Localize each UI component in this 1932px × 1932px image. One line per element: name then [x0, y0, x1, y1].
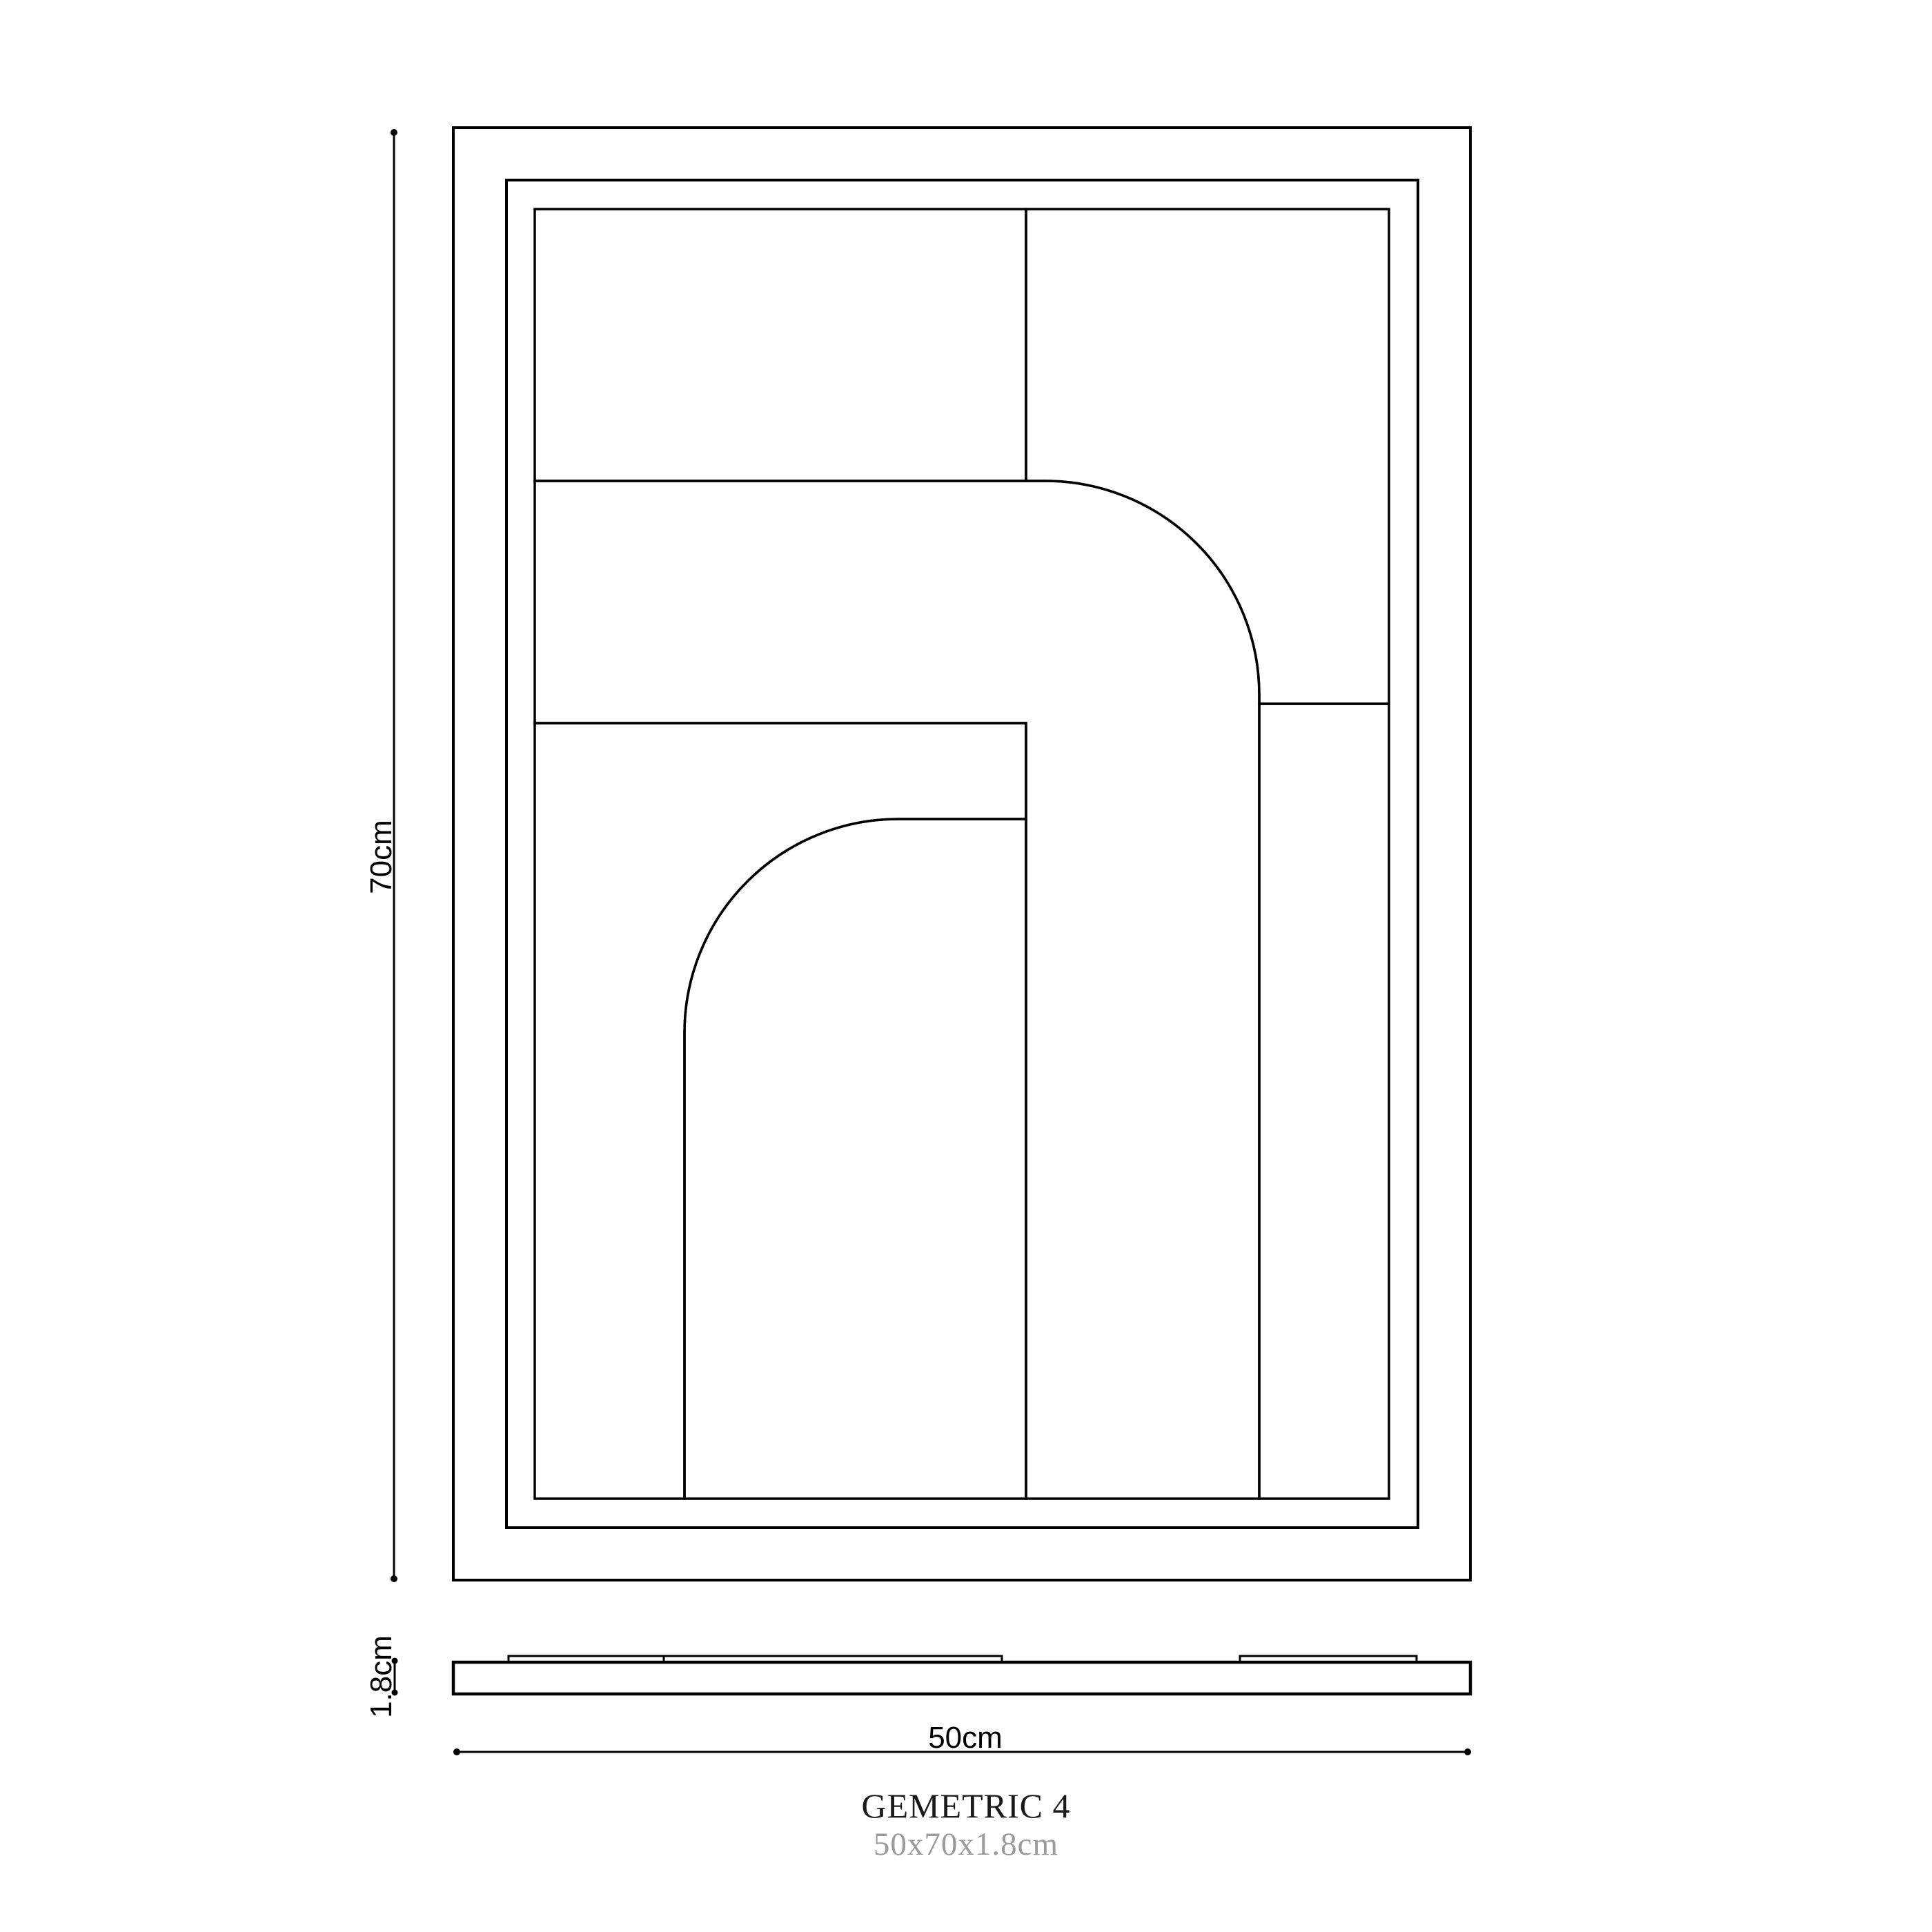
product-title: GEMETRIC 4: [861, 1786, 1070, 1825]
side-panel-bar: [453, 1662, 1470, 1694]
dimension-height: 70cm: [364, 129, 398, 1582]
title-block: GEMETRIC 4 50x70x1.8cm: [861, 1786, 1070, 1862]
dimension-height-label: 70cm: [364, 820, 398, 894]
dimension-depth-label: 1.8cm: [364, 1635, 398, 1718]
dimension-depth: 1.8cm: [364, 1635, 398, 1718]
dimension-height-dot-bottom: [391, 1575, 397, 1582]
dimension-width-dot-right: [1464, 1748, 1471, 1755]
band-lower-left: [535, 723, 1026, 1499]
dimension-width: 50cm: [453, 1721, 1471, 1755]
dimension-height-dot-top: [391, 129, 397, 136]
side-view: [453, 1656, 1470, 1694]
tile-top-right: [1026, 209, 1389, 704]
strip-arch: [684, 819, 1026, 1499]
technical-drawing: 70cm 1.8cm 50cm GEMETRIC 4 50x70x1.8cm: [0, 0, 1932, 1932]
product-dimensions-subtitle: 50x70x1.8cm: [874, 1826, 1058, 1862]
front-view: [453, 128, 1470, 1580]
dimension-width-dot-left: [453, 1748, 460, 1755]
strip-right: [1259, 704, 1389, 1499]
tile-top-left: [535, 209, 1026, 481]
dimension-width-label: 50cm: [928, 1721, 1003, 1755]
outer-frame: [453, 128, 1470, 1580]
inner-frame: [506, 180, 1418, 1528]
band-middle: [535, 481, 1259, 1499]
